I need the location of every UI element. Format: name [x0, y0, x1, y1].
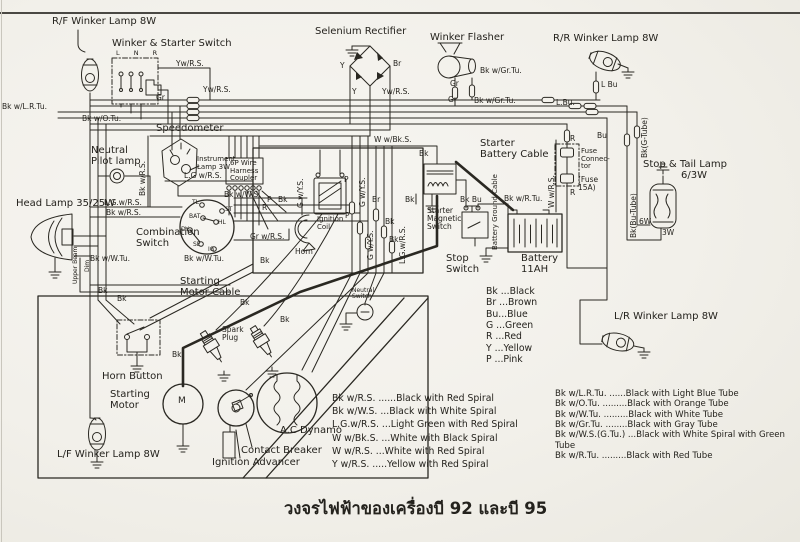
- wire-label: Bu: [597, 132, 607, 140]
- wiring-diagram-page: R/F Winker Lamp 8W Winker & Starter Swit…: [0, 0, 800, 542]
- terminal-label-se: SE: [193, 242, 201, 248]
- label-horn: Horn: [295, 248, 313, 256]
- battery-symbol: [508, 210, 562, 252]
- winker-flasher-symbol: [438, 43, 476, 78]
- legend-row: Y ...Yellow: [486, 343, 537, 354]
- label-motor-m: M: [178, 397, 186, 407]
- stop-switch-symbol: [462, 206, 488, 246]
- wire-label: R: [570, 189, 575, 197]
- ac-dynamo-symbol: [257, 373, 317, 433]
- rf-winker-lamp-symbol: [82, 59, 99, 91]
- horn-button-symbol: [117, 320, 160, 355]
- lf-winker-lamp-symbol: [89, 418, 106, 450]
- legend-row: Bk w/W.S.(G.Tu.) ...Black with White Spi…: [555, 430, 797, 451]
- wire-label: Bk: [278, 196, 288, 204]
- wire-label: Br: [372, 196, 380, 204]
- legend-row: Bk ...Black: [486, 286, 537, 297]
- legend-row: Bk w/W.S. ...Black with White Spiral: [332, 405, 518, 418]
- terminal-label-dy: DY: [181, 227, 189, 233]
- ignition-coil-symbol: [314, 173, 346, 214]
- label-contact-breaker: Contact Breaker: [241, 446, 322, 457]
- wire-label: Yw/R.S.: [176, 60, 204, 68]
- wire-label: Bk w/R.S.: [139, 161, 147, 196]
- label-battery-ground-cable: Battery Ground Cable: [492, 174, 500, 250]
- label-starter-battery-cable: Starter Battery Cable: [480, 139, 549, 161]
- terminal-label-ig: IG: [208, 247, 214, 253]
- wire-label: Bk(G-Tube): [641, 117, 649, 158]
- wire-label: Bk: [98, 287, 108, 295]
- legend-row: Bk w/W.Tu. .........Black with White Tub…: [555, 410, 797, 420]
- label-ignition-coil: Ignition Coil: [317, 216, 343, 231]
- wire-label: G w/Y.S.: [367, 231, 375, 260]
- wire-label: W w/R.S.: [548, 175, 556, 208]
- label-neutral-pilot-lamp: Neutral Pilot lamp: [91, 146, 141, 168]
- wire-label: Gr: [448, 96, 457, 104]
- label-speedometer: Speedometer: [156, 124, 224, 135]
- label-horn-button: Horn Button: [102, 372, 163, 383]
- wire-label: Br: [393, 60, 401, 68]
- legend-row: Bk w/L.R.Tu. ......Black with Light Blue…: [555, 389, 797, 399]
- wire-label: 6W: [639, 218, 651, 226]
- wire-label: G w/Y.S.: [297, 179, 305, 208]
- legend-row: R ...Red: [486, 331, 537, 342]
- wire-label: P: [344, 176, 349, 184]
- label-spark-plug: Spark Plug: [222, 326, 244, 342]
- wire-label: Bk w/W.Tu.: [184, 255, 224, 263]
- tube-code-legend: Bk w/L.R.Tu. ......Black with Light Blue…: [555, 389, 797, 461]
- wire-label: L.Bu.: [556, 99, 575, 107]
- wire-label: Bk: [385, 218, 395, 226]
- neutral-pilot-lamp-symbol: [110, 169, 124, 183]
- label-starter-magnetic-switch: Starter Magnetic Switch: [427, 207, 461, 231]
- wire-label: Bk: [419, 150, 429, 158]
- label-starting-motor-cable: Starting Motor Cable: [180, 277, 240, 299]
- neutral-switch-symbol: [357, 304, 373, 320]
- label-winker-flasher: Winker Flasher: [430, 33, 504, 44]
- wire-label: Bk w/L.R.Tu.: [2, 103, 47, 111]
- wire-label: P: [267, 196, 272, 204]
- wire-label: Bk w/R.Tu.: [504, 195, 542, 203]
- legend-row: Bk w/R.S. ......Black with Red Spiral: [332, 392, 518, 405]
- wire-label: Bk: [172, 351, 182, 359]
- terminal-label-st: ST: [225, 207, 232, 213]
- diagram-caption: วงจรไฟฟ้าของเครื่องบี 92 และบี 95: [284, 496, 547, 522]
- wire-label: W w/Bk.S.: [374, 136, 411, 144]
- wire-label: Bk: [280, 316, 290, 324]
- head-lamp-symbol: [31, 214, 73, 260]
- legend-row: Bu...Blue: [486, 309, 537, 320]
- wire-label: Bk w/W.Tu.: [90, 255, 130, 263]
- wire-label: 3W: [662, 229, 674, 237]
- wire-label: Bk w/O.Tu.: [82, 115, 121, 123]
- wire-label: Bk w/Gr.Tu.: [474, 97, 516, 105]
- wire-label: R: [570, 135, 575, 143]
- wire-label: L Bu: [601, 81, 617, 89]
- wire-label: Y: [340, 62, 345, 70]
- legend-row: Br ...Brown: [486, 297, 537, 308]
- wire-label: Yw/R.S.: [382, 88, 410, 96]
- legend-row: P ...Pink: [486, 354, 537, 365]
- label-neutral-switch: Neutral Switch: [352, 288, 374, 301]
- label-stop-tail-rating: 6/3W: [681, 171, 707, 182]
- wire-label: Bk Bu: [460, 196, 482, 204]
- wire-label: P: [345, 212, 350, 220]
- color-code-legend: Bk ...Black Br ...Brown Bu...Blue G ...G…: [486, 286, 537, 365]
- label-selenium-rectifier: Selenium Rectifier: [315, 27, 406, 38]
- label-battery: Battery 11AH: [521, 254, 558, 276]
- wire-label: Dim: [85, 260, 91, 272]
- lr-winker-lamp-symbol: [601, 330, 636, 353]
- wire-label: R: [262, 204, 267, 212]
- winker-starter-switch-symbol: [112, 58, 161, 104]
- wire-label: Bk: [405, 196, 415, 204]
- wire-label: Bk: [260, 257, 270, 265]
- rr-winker-lamp-symbol: [587, 48, 623, 75]
- legend-row: L.G.w/R.S. ...Light Green with Red Spira…: [332, 418, 518, 431]
- legend-row: Y w/R.S. .....Yellow with Red Spiral: [332, 458, 518, 471]
- wire-label: Gr: [156, 94, 165, 102]
- wire-label: Bk: [240, 299, 250, 307]
- label-combination-switch: Combination Switch: [136, 228, 200, 250]
- legend-row: W w/Bk.S. ...White with Black Spiral: [332, 432, 518, 445]
- wire-label: Gr w/R.S.: [250, 233, 284, 241]
- label-head-lamp: Head Lamp 35/25W: [16, 199, 115, 210]
- selenium-rectifier-symbol: [350, 46, 390, 86]
- legend-row: Bk w/Gr.Tu. ........Black with Gray Tube: [555, 420, 797, 430]
- wire-label: Bk(Bu-Tube): [630, 193, 638, 238]
- label-fuse-connector: Fuse Connec- tor: [581, 148, 610, 171]
- wire-label: Y: [352, 88, 357, 96]
- terminal-label-bat: BAT: [189, 214, 200, 220]
- legend-row: W w/R.S. ...White with Red Spiral: [332, 445, 518, 458]
- label-switch-positions: L N R: [116, 50, 163, 57]
- label-ignition-advancer: Ignition Advancer: [212, 458, 300, 469]
- wire-label: Bk w/Gr.Tu.: [480, 67, 522, 75]
- wire-label: L.G w/R.S.: [184, 172, 222, 180]
- label-fuse-rating: (Fuse 15A): [578, 176, 598, 192]
- label-harness-coupler: 6P Wire Harness Coupler: [230, 160, 258, 183]
- wire-label: Gr: [450, 80, 459, 88]
- wire-label: Upper Beam: [73, 247, 79, 284]
- label-rr-winker-lamp: R/R Winker Lamp 8W: [553, 34, 658, 45]
- legend-row: Bk w/R.Tu. .........Black with Red Tube: [555, 451, 797, 461]
- starter-magnetic-switch-symbol: [424, 164, 456, 194]
- wire-label: Bk w/W.S.: [224, 191, 261, 199]
- wire-label: L.G.w/R.S.: [399, 226, 407, 264]
- stop-tail-lamp-symbol: [650, 184, 676, 228]
- wire-label: L.G.w/R.S.: [104, 199, 142, 207]
- wire-label: G w/Y.S.: [359, 178, 367, 207]
- label-lf-winker-lamp: L/F Winker Lamp 8W: [57, 450, 160, 461]
- terminal-label-hl: HL: [218, 220, 226, 226]
- label-starting-motor: Starting Motor: [110, 390, 150, 412]
- wire-label: Bk w/R.S.: [106, 209, 141, 217]
- label-rf-winker-lamp: R/F Winker Lamp 8W: [52, 17, 156, 28]
- spiral-code-legend: Bk w/R.S. ......Black with Red Spiral Bk…: [332, 392, 518, 471]
- terminal-label-tl: TL: [192, 200, 199, 206]
- label-stop-switch: Stop Switch: [446, 254, 479, 276]
- legend-row: G ...Green: [486, 320, 537, 331]
- wire-label: Yw/R.S.: [203, 86, 231, 94]
- legend-row: Bk w/O.Tu. .........Black with Orange Tu…: [555, 399, 797, 409]
- label-lr-winker-lamp: L/R Winker Lamp 8W: [614, 312, 718, 323]
- wire-label: Bk: [117, 295, 127, 303]
